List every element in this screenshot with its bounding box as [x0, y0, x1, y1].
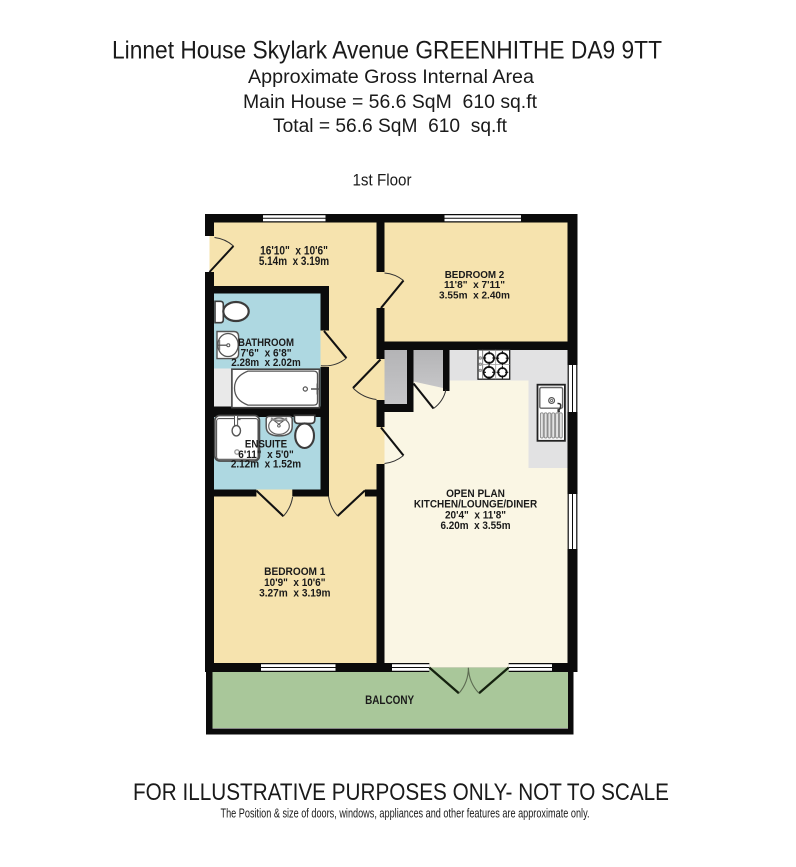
svg-text:Main House = 56.6 SqM 610 sq.: Main House = 56.6 SqM 610 sq.ft — [243, 92, 538, 113]
svg-text:Total = 56.6 SqM 610 sq.ft: Total = 56.6 SqM 610 sq.ft — [273, 116, 508, 137]
svg-text:Linnet House Skylark Avenue GR: Linnet House Skylark Avenue GREENHITHE D… — [112, 37, 662, 65]
svg-text:KITCHEN/LOUNGE/DINER: KITCHEN/LOUNGE/DINER — [414, 498, 538, 510]
svg-text:6.20m x 3.55m: 6.20m x 3.55m — [440, 520, 510, 532]
svg-text:3.55m x 2.40m: 3.55m x 2.40m — [439, 291, 510, 302]
svg-text:2.28m x 2.02m: 2.28m x 2.02m — [231, 357, 300, 369]
svg-text:The Position & size of doors,: The Position & size of doors, windows, a… — [221, 806, 590, 821]
svg-text:5.14m x 3.19m: 5.14m x 3.19m — [259, 254, 329, 268]
svg-text:FOR ILLUSTRATIVE PURPOSES ONLY: FOR ILLUSTRATIVE PURPOSES ONLY- NOT TO S… — [133, 779, 669, 806]
svg-text:BALCONY: BALCONY — [365, 693, 414, 707]
svg-text:3.27m x 3.19m: 3.27m x 3.19m — [259, 587, 330, 599]
svg-text:Approximate Gross Internal Are: Approximate Gross Internal Area — [248, 67, 534, 88]
svg-text:2.12m x 1.52m: 2.12m x 1.52m — [231, 459, 301, 471]
svg-text:11'8" x 7'11": 11'8" x 7'11" — [444, 280, 505, 291]
svg-text:1st Floor: 1st Floor — [353, 172, 412, 190]
